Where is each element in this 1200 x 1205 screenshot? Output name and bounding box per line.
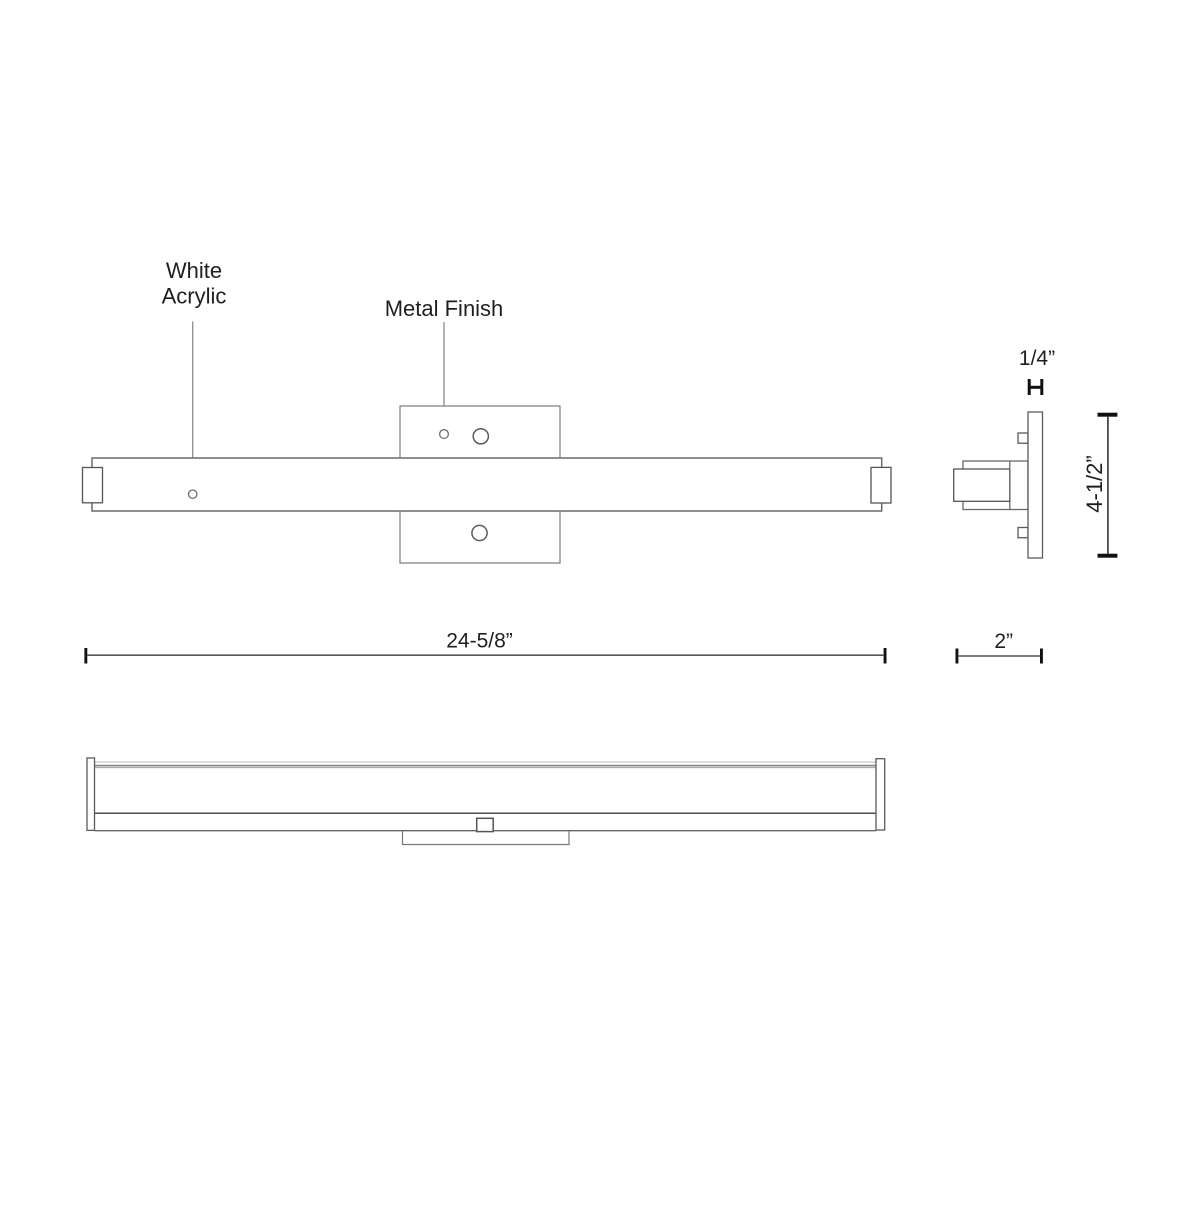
svg-text:2”: 2” [994, 630, 1013, 653]
svg-text:Acrylic: Acrylic [162, 284, 227, 309]
svg-text:Metal Finish: Metal Finish [385, 296, 504, 321]
svg-text:24-5/8”: 24-5/8” [446, 629, 513, 652]
svg-text:4-1/2”: 4-1/2” [1082, 455, 1107, 512]
svg-text:1/4”: 1/4” [1019, 347, 1055, 370]
svg-text:White: White [166, 258, 222, 283]
